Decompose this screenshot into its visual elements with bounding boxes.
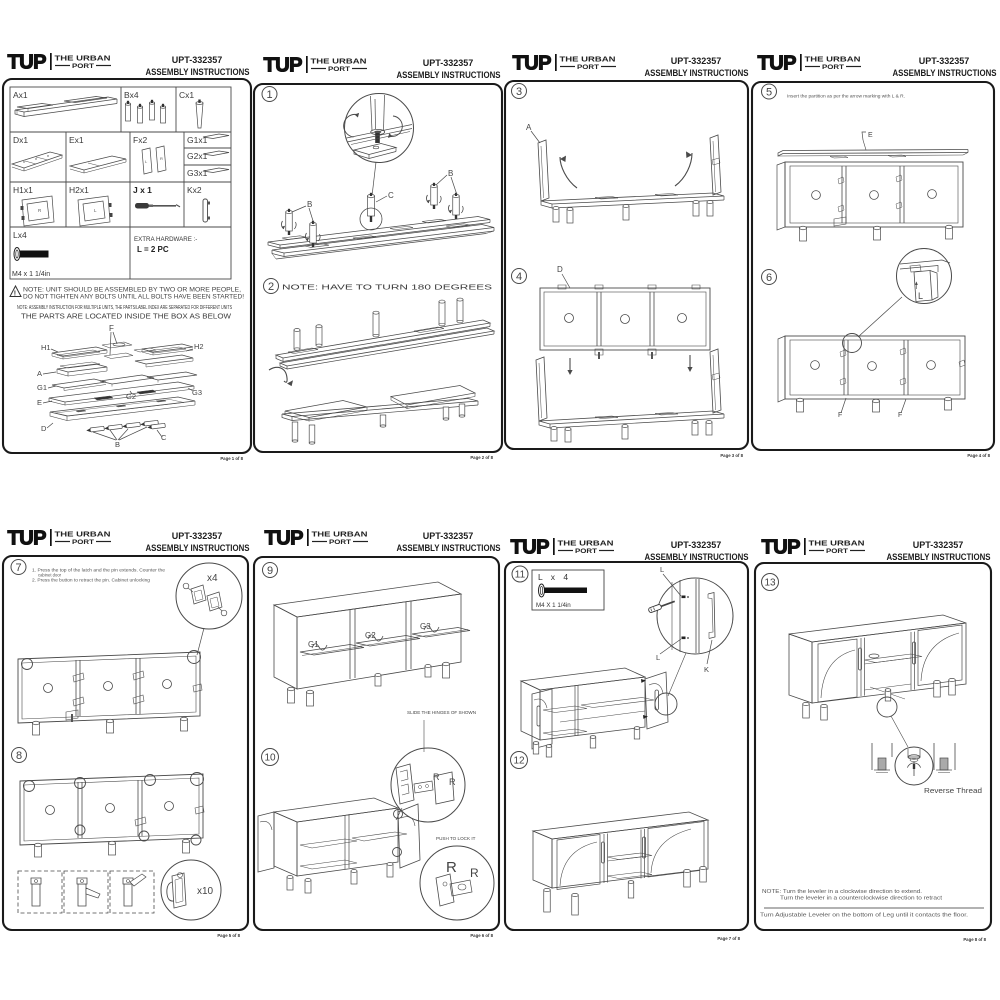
svg-text:H1x1: H1x1 [13,185,33,195]
svg-text:ASSEMBLY INSTRUCTIONS: ASSEMBLY INSTRUCTIONS [887,552,991,562]
svg-text:UPT-332357: UPT-332357 [671,540,722,550]
svg-text:ASSEMBLY INSTRUCTIONS: ASSEMBLY INSTRUCTIONS [146,543,250,553]
svg-text:L = 2 PC: L = 2 PC [137,245,169,254]
svg-text:G2: G2 [365,631,376,640]
svg-text:L: L [94,208,97,213]
svg-text:TUP: TUP [265,528,304,550]
svg-text:Page 3 of 8: Page 3 of 8 [720,453,743,458]
svg-text:x4: x4 [207,573,218,584]
svg-text:L: L [656,653,660,662]
svg-text:UPT-332357: UPT-332357 [172,531,223,541]
svg-text:D: D [557,265,563,274]
svg-text:Insert the partition as pe: Insert the partition as per the arrow ma… [787,94,905,99]
svg-text:A: A [37,369,42,378]
svg-text:TUP: TUP [758,53,797,75]
svg-text:UPT-332357: UPT-332357 [172,55,223,65]
svg-text:2. Press the button to r: 2. Press the button to retract the pin. … [32,578,151,583]
svg-text:ASSEMBLY INSTRUCTIONS: ASSEMBLY INSTRUCTIONS [146,67,250,77]
svg-text:J x 1: J x 1 [133,185,152,195]
svg-text:M4 x 1 1/4in: M4 x 1 1/4in [12,271,50,278]
svg-text:H1: H1 [41,343,51,352]
svg-text:F: F [838,412,842,419]
svg-text:THE URBAN: THE URBAN [55,530,111,539]
svg-text:R: R [38,208,42,213]
svg-text:THE URBAN: THE URBAN [805,55,861,64]
svg-text:Page 7 of 8: Page 7 of 8 [717,936,740,941]
svg-text:B: B [307,200,312,209]
svg-text:UPT-332357: UPT-332357 [913,540,964,550]
svg-text:8: 8 [16,750,22,762]
svg-text:Bx4: Bx4 [124,90,139,100]
svg-text:THE URBAN: THE URBAN [560,55,616,64]
svg-text:R: R [446,859,457,876]
svg-text:7: 7 [15,562,21,574]
svg-text:G1: G1 [37,383,47,392]
svg-text:E: E [37,398,42,407]
svg-text:ASSEMBLY INSTRUCTIONS: ASSEMBLY INSTRUCTIONS [893,68,997,78]
svg-text:Page 8 of 8: Page 8 of 8 [963,937,986,942]
svg-text:THE URBAN: THE URBAN [55,54,111,63]
svg-text:THE URBAN: THE URBAN [558,539,614,548]
svg-text:PORT: PORT [329,539,352,546]
svg-text:TUP: TUP [762,537,801,559]
svg-text:C: C [388,191,394,200]
svg-text:PORT: PORT [328,66,351,73]
svg-text:ASSEMBLY INSTRUCTIONS: ASSEMBLY INSTRUCTIONS [645,68,749,78]
svg-text:Cx1: Cx1 [179,90,194,100]
svg-text:F: F [898,412,902,419]
svg-text:G2x1: G2x1 [187,151,208,161]
svg-text:L: L [918,291,923,301]
svg-text:Page 1 of 8: Page 1 of 8 [220,456,243,461]
svg-text:Page 4 of 8: Page 4 of 8 [967,453,990,458]
svg-text:Ax1: Ax1 [13,90,28,100]
svg-text:H2: H2 [194,342,204,351]
svg-text:UPT-332357: UPT-332357 [423,58,474,68]
svg-text:NOTE: UNIT SHOULD BE ASSEM: NOTE: UNIT SHOULD BE ASSEMBLED BY TWO OR… [23,287,241,294]
svg-text:B: B [448,169,453,178]
svg-text:Dx1: Dx1 [13,135,28,145]
svg-text:6: 6 [766,272,772,284]
svg-text:L x 4: L x 4 [538,572,571,582]
svg-text:PORT: PORT [575,548,598,555]
svg-text:SLIDE THE HINGES OF SHOWN: SLIDE THE HINGES OF SHOWN [407,710,476,715]
svg-text:PORT: PORT [826,548,849,555]
svg-text:F: F [109,324,114,333]
svg-text:E: E [868,132,873,139]
svg-text:G3: G3 [420,622,431,631]
svg-text:Lx4: Lx4 [13,230,27,240]
svg-text:12: 12 [513,756,525,767]
svg-text:TUP: TUP [8,52,47,74]
svg-text:Ex1: Ex1 [69,135,84,145]
svg-text:NOTE: Turn the leveler in: NOTE: Turn the leveler in a clockwise di… [762,889,922,895]
svg-text:PORT: PORT [72,539,95,546]
svg-text:R: R [160,156,163,161]
svg-text:PUSH TO LOCK IT: PUSH TO LOCK IT [436,836,476,841]
svg-text:UPT-332357: UPT-332357 [671,56,722,66]
svg-text:Turn the leveler in a cou: Turn the leveler in a counterclockwise d… [780,896,943,902]
svg-text:9: 9 [267,565,273,577]
svg-text:UPT-332357: UPT-332357 [423,531,474,541]
svg-text:ASSEMBLY INSTRUCTIONS: ASSEMBLY INSTRUCTIONS [397,543,501,553]
svg-text:Turn Adjustable Leveler on: Turn Adjustable Leveler on the bottom of… [760,913,968,919]
svg-text:3: 3 [516,86,522,98]
svg-text:4: 4 [516,271,522,283]
svg-text:G1: G1 [308,640,319,649]
svg-text:C: C [161,433,167,442]
svg-text:L: L [145,159,148,164]
svg-text:13: 13 [764,578,776,589]
svg-text:THE URBAN: THE URBAN [312,530,368,539]
svg-text:R: R [470,866,479,880]
svg-text:THE URBAN: THE URBAN [311,57,367,66]
svg-text:DO NOT TIGHTEN ANY BOLTS: DO NOT TIGHTEN ANY BOLTS UNTIL ALL BOLTS… [23,294,244,301]
svg-text:R: R [433,772,440,782]
svg-text:THE URBAN: THE URBAN [809,539,865,548]
svg-text:PORT: PORT [822,64,845,71]
svg-text:G3x1: G3x1 [187,168,208,178]
svg-text:L: L [660,565,664,574]
svg-text:THE PARTS ARE LOCATED INSID: THE PARTS ARE LOCATED INSIDE THE BOX AS … [21,314,231,321]
svg-text:1: 1 [266,89,272,101]
svg-text:Page 2 of 8: Page 2 of 8 [470,455,493,460]
svg-text:10: 10 [264,753,276,764]
svg-text:Page 6 of 8: Page 6 of 8 [470,933,493,938]
svg-text:NOTE: HAVE TO TURN 180 DE: NOTE: HAVE TO TURN 180 DEGREES [282,283,492,292]
svg-text:A: A [526,123,532,132]
svg-text:x10: x10 [197,886,214,897]
svg-text:NOTE: ASSEMBLY INSTRUCTION FOR: NOTE: ASSEMBLY INSTRUCTION FOR MULTIPLE … [17,305,232,311]
svg-text:TUP: TUP [511,537,550,559]
svg-text:K: K [704,665,709,674]
svg-text:ASSEMBLY INSTRUCTIONS: ASSEMBLY INSTRUCTIONS [645,552,749,562]
svg-text:UPT-332357: UPT-332357 [919,56,970,66]
svg-text:ASSEMBLY INSTRUCTIONS: ASSEMBLY INSTRUCTIONS [397,70,501,80]
svg-text:H2x1: H2x1 [69,185,89,195]
svg-text:Reverse Thread: Reverse Thread [924,786,982,795]
svg-text:Kx2: Kx2 [187,185,202,195]
svg-text:2: 2 [268,281,274,293]
svg-text:B: B [115,440,120,449]
svg-text:TUP: TUP [8,528,47,550]
svg-text:PORT: PORT [72,63,95,70]
svg-text:R: R [449,777,456,787]
svg-text:D: D [41,424,47,433]
svg-text:PORT: PORT [577,64,600,71]
svg-text:TUP: TUP [264,55,303,77]
svg-text:11: 11 [515,570,526,581]
svg-text:Fx2: Fx2 [133,135,147,145]
svg-text:M4 X 1 1/4in: M4 X 1 1/4in [536,602,571,609]
svg-text:!: ! [14,290,16,297]
svg-text:TUP: TUP [513,53,552,75]
svg-text:EXTRA HARDWARE :-: EXTRA HARDWARE :- [134,236,197,243]
svg-text:5: 5 [766,86,772,98]
svg-text:Page 5 of 8: Page 5 of 8 [217,933,240,938]
